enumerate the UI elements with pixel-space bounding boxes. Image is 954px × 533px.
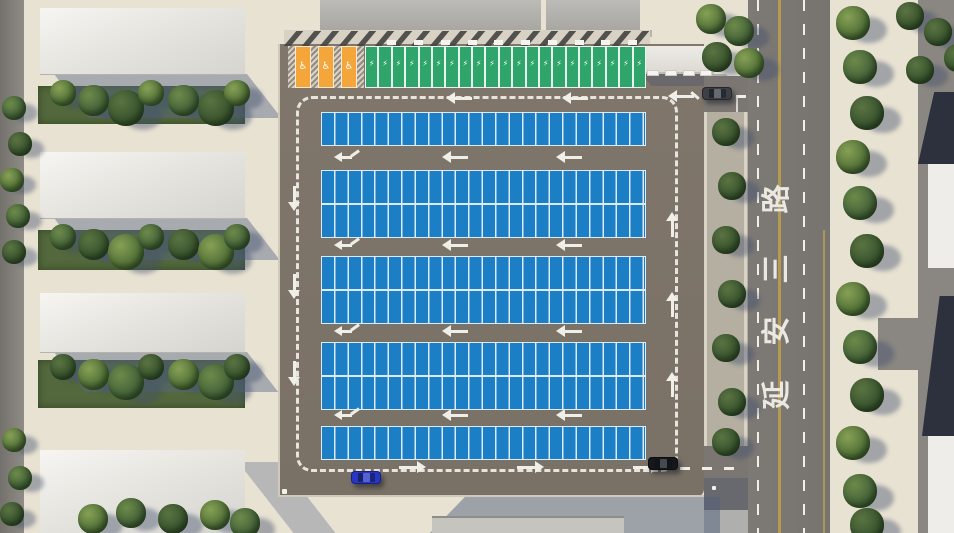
sign-pole [736, 98, 738, 112]
ev-parking-stall: ⚡ [405, 46, 418, 88]
tree [696, 4, 726, 34]
arrow-shaft [450, 244, 468, 247]
ev-parking-stall: ⚡ [606, 46, 619, 88]
ev-charger-icon: ⚡ [445, 58, 458, 70]
arrow-head [334, 240, 342, 250]
arrow-head [442, 325, 451, 337]
tree [843, 474, 877, 508]
ev-parking-stall: ⚡ [633, 46, 646, 88]
parking-stall-row [321, 426, 646, 460]
tree [158, 504, 188, 533]
parking-stall-row [321, 342, 646, 376]
tree [78, 85, 109, 116]
lane-arrow-left [562, 92, 592, 104]
wall-pillar [683, 70, 695, 76]
arrow-head [442, 151, 451, 163]
tree [712, 334, 740, 362]
arrow-shaft [399, 466, 417, 469]
arrow-shaft [564, 414, 582, 417]
ev-charger-icon: ⚡ [472, 58, 485, 70]
tree [224, 80, 250, 106]
arrow-head [334, 152, 342, 162]
parking-stall-row [321, 204, 646, 238]
tree [168, 85, 199, 116]
arrow-shaft [450, 330, 468, 333]
charger-canopy-tab [441, 40, 450, 45]
tree [2, 96, 26, 120]
ev-charger-icon: ⚡ [633, 58, 646, 70]
arrow-head [556, 409, 565, 421]
ev-parking-stall: ⚡ [566, 46, 579, 88]
lane-arrow-left [556, 151, 586, 163]
ev-parking-stall: ⚡ [579, 46, 592, 88]
tree [712, 428, 740, 456]
tree [50, 80, 76, 106]
arrow-head [535, 461, 544, 473]
lane-arrow-left [446, 92, 476, 104]
lane-arrow-up [666, 212, 696, 224]
charger-canopy-tab [468, 40, 477, 45]
lane-arrow-left [442, 239, 472, 251]
tree [78, 229, 109, 260]
ev-charger-icon: ⚡ [526, 58, 539, 70]
ev-parking-stall: ⚡ [485, 46, 498, 88]
arrow-head [288, 290, 300, 299]
vehicle-black-car [648, 457, 678, 470]
arrow-shaft [671, 381, 674, 397]
ev-parking-stall: ⚡ [552, 46, 565, 88]
accessible-parking-stall: ♿ [295, 46, 311, 88]
aerial-scene: 路 三 安 延 ♿♿♿⚡⚡⚡⚡⚡⚡⚡⚡⚡⚡⚡⚡⚡⚡⚡⚡⚡⚡⚡⚡⚡ [0, 0, 954, 533]
rooftop-building [546, 0, 640, 32]
tree [50, 354, 76, 380]
charger-canopy-tab [575, 40, 584, 45]
tree [836, 426, 870, 460]
lane-arrow-left [442, 151, 472, 163]
tree [6, 204, 30, 228]
lane-arrow-up [666, 292, 696, 304]
ev-charger-icon: ⚡ [432, 58, 445, 70]
ev-charger-icon: ⚡ [499, 58, 512, 70]
arrow-head [666, 372, 678, 381]
arrow-shaft [293, 361, 296, 377]
lane-arrow-down [288, 274, 318, 286]
access-aisle-hatch [357, 46, 364, 88]
wheelchair-icon: ♿ [295, 60, 311, 74]
ev-charger-icon: ⚡ [378, 58, 391, 70]
exit-lane-dashes [680, 467, 746, 470]
arrow-head [556, 325, 565, 337]
tree [116, 498, 146, 528]
tree [2, 240, 26, 264]
arrow-head [556, 151, 565, 163]
tree [168, 359, 199, 390]
charger-canopy-tab [387, 40, 396, 45]
lane-turn-hook-arrow [334, 151, 360, 163]
ev-parking-stall: ⚡ [432, 46, 445, 88]
lot-curb [278, 44, 280, 497]
warehouse-building [40, 293, 245, 353]
wheelchair-icon: ♿ [318, 60, 334, 74]
arrow-head [417, 461, 426, 473]
ev-parking-stall: ⚡ [445, 46, 458, 88]
wall-pillar [647, 70, 659, 76]
lane-turn-hook-arrow [334, 239, 360, 251]
tree [230, 508, 260, 533]
arrow-head [666, 212, 678, 221]
car-roof [363, 473, 370, 482]
arrow-shaft [671, 221, 674, 237]
tree [843, 330, 877, 364]
tree [224, 224, 250, 250]
arrow-shaft [450, 156, 468, 159]
lane-arrow-left [556, 239, 586, 251]
accessible-parking-stall: ♿ [341, 46, 357, 88]
ev-parking-stall: ⚡ [512, 46, 525, 88]
lane-arrow-left [556, 325, 586, 337]
ev-parking-stall: ⚡ [378, 46, 391, 88]
road-name-char: 安 [759, 309, 793, 353]
tree [718, 280, 746, 308]
arrow-shaft [564, 156, 582, 159]
arrow-head [446, 92, 455, 104]
lane-arrow-left [556, 409, 586, 421]
charger-canopy-tab [601, 40, 610, 45]
arrow-head [334, 326, 342, 336]
tree [8, 466, 32, 490]
ev-parking-stall: ⚡ [365, 46, 378, 88]
median-curb [704, 112, 707, 446]
car-roof [714, 89, 721, 98]
ev-parking-stall: ⚡ [526, 46, 539, 88]
arrow-shaft [293, 274, 296, 290]
tree [138, 80, 164, 106]
tree [168, 229, 199, 260]
ev-charger-icon: ⚡ [365, 58, 378, 70]
arrow-shaft [570, 97, 588, 100]
ev-charger-icon: ⚡ [566, 58, 579, 70]
tree [850, 96, 884, 130]
arrow-shaft [517, 466, 535, 469]
lane-turn-hook-arrow [334, 325, 360, 337]
lane-arrow-left [442, 325, 472, 337]
ev-charger-icon: ⚡ [592, 58, 605, 70]
road-name-char: 延 [759, 373, 793, 417]
ev-parking-stall: ⚡ [419, 46, 432, 88]
ev-parking-stall: ⚡ [392, 46, 405, 88]
corner-dot [712, 486, 716, 490]
ev-charger-icon: ⚡ [459, 58, 472, 70]
tree [702, 42, 732, 72]
tree [138, 224, 164, 250]
parking-stall-row [321, 256, 646, 290]
lane-arrow-down [288, 361, 318, 373]
wall-pillar [665, 70, 677, 76]
arrow-shaft [293, 186, 296, 202]
tree [724, 16, 754, 46]
tree [850, 378, 884, 412]
arrow-shaft [564, 244, 582, 247]
lane-arrow-up [666, 372, 696, 384]
ev-charger-icon: ⚡ [539, 58, 552, 70]
ev-charger-icon: ⚡ [392, 58, 405, 70]
ev-charger-icon: ⚡ [485, 58, 498, 70]
tree [138, 354, 164, 380]
tree [224, 354, 250, 380]
lane-line-dashed [803, 0, 805, 533]
corner-dot [282, 489, 287, 494]
lane-arrow-right [396, 461, 426, 473]
tree [924, 18, 952, 46]
car-rear-window [667, 459, 672, 468]
tree [712, 226, 740, 254]
ev-parking-stall: ⚡ [619, 46, 632, 88]
ev-charger-icon: ⚡ [606, 58, 619, 70]
lane-arrow-left [442, 409, 472, 421]
ev-parking-stall: ⚡ [539, 46, 552, 88]
ev-charger-icon: ⚡ [512, 58, 525, 70]
arrow-head [442, 239, 451, 251]
rooftop-building [320, 0, 541, 32]
charger-canopy-tab [628, 40, 637, 45]
tree [50, 224, 76, 250]
warehouse-building [40, 8, 245, 75]
ev-charger-icon: ⚡ [619, 58, 632, 70]
tree [712, 118, 740, 146]
tree [836, 6, 870, 40]
ev-parking-stall: ⚡ [499, 46, 512, 88]
accessible-parking-stall: ♿ [318, 46, 334, 88]
tree [843, 50, 877, 84]
tree [850, 234, 884, 268]
charger-canopy-tab [414, 40, 423, 45]
access-aisle-hatch [334, 46, 341, 88]
arrow-shaft [450, 414, 468, 417]
arrow-head [442, 409, 451, 421]
lane-arrow-right [514, 461, 544, 473]
arrow-head [562, 92, 571, 104]
parking-stall-row [321, 112, 646, 146]
wheelchair-icon: ♿ [341, 60, 357, 74]
tree [78, 359, 109, 390]
charger-canopy-tab [521, 40, 530, 45]
ev-parking-stall: ⚡ [592, 46, 605, 88]
road-name-char: 路 [759, 177, 793, 221]
tree [734, 48, 764, 78]
arrow-head [288, 377, 300, 386]
arrow-shaft [454, 97, 472, 100]
access-aisle-hatch [288, 46, 295, 88]
charger-canopy-tab [548, 40, 557, 45]
arrow-head [666, 292, 678, 301]
arrow-head [334, 410, 342, 420]
tree [200, 500, 230, 530]
east-building [928, 164, 954, 268]
tree [2, 428, 26, 452]
parking-stall-row [321, 170, 646, 204]
vehicle-blue-car [351, 471, 381, 484]
arrow-shaft [564, 330, 582, 333]
arrow-head [288, 202, 300, 211]
warehouse-building [40, 152, 245, 219]
vehicle-gray-car [702, 87, 732, 100]
tree [836, 140, 870, 174]
east-building [928, 436, 954, 533]
lane-arrow-down [288, 186, 318, 198]
ev-charger-icon: ⚡ [419, 58, 432, 70]
access-aisle-hatch [311, 46, 318, 88]
tree [0, 168, 24, 192]
arrow-shaft [671, 301, 674, 317]
ev-charger-icon: ⚡ [405, 58, 418, 70]
arrow-head [556, 239, 565, 251]
tree [906, 56, 934, 84]
parking-stall-row [321, 376, 646, 410]
lot-curb [278, 495, 704, 497]
car-rear-window [370, 473, 375, 482]
parking-stall-row [321, 290, 646, 324]
ev-charger-icon: ⚡ [552, 58, 565, 70]
tree [850, 508, 884, 533]
tree [896, 2, 924, 30]
tree [8, 132, 32, 156]
lane-turn-hook-arrow [334, 409, 360, 421]
car-roof [660, 459, 667, 468]
arrow-head [668, 90, 677, 102]
south-rooftop [432, 516, 624, 533]
charger-canopy-tab [494, 40, 503, 45]
ev-parking-stall: ⚡ [459, 46, 472, 88]
tree [843, 186, 877, 220]
tree [718, 388, 746, 416]
tree [718, 172, 746, 200]
car-rear-window [721, 89, 726, 98]
ev-charger-icon: ⚡ [579, 58, 592, 70]
road-name-char: 三 [759, 247, 793, 291]
edge-line-yellow [823, 230, 825, 533]
tree [78, 504, 108, 533]
tree [836, 282, 870, 316]
ev-parking-stall: ⚡ [472, 46, 485, 88]
tree [0, 502, 24, 526]
